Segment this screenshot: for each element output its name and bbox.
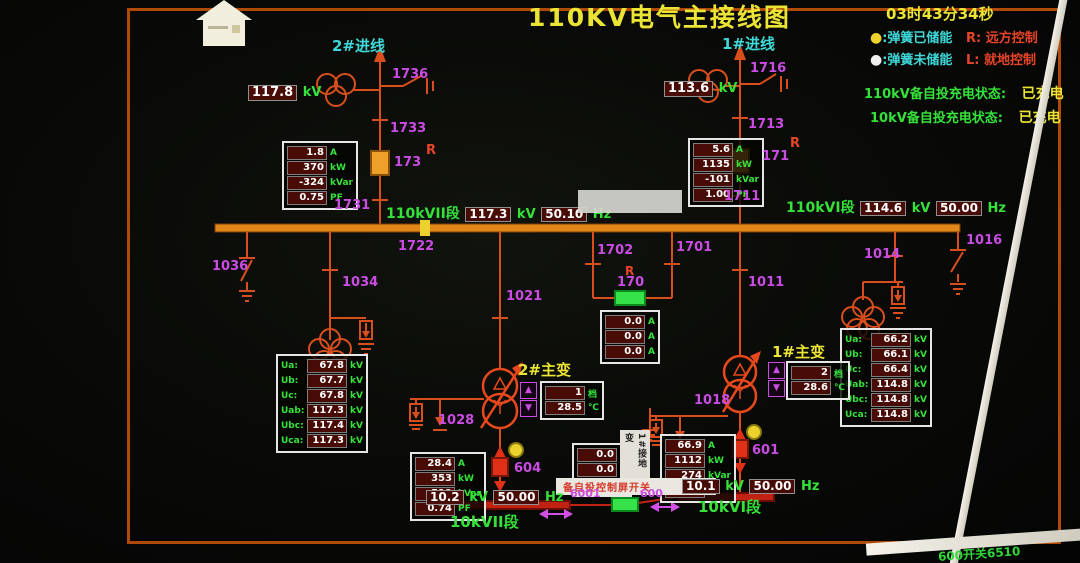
transformer-2-symbol-part[interactable]	[494, 378, 506, 389]
feeder-1-voltage: 113.6 kV	[664, 78, 737, 97]
meter-unit: kW	[736, 160, 752, 170]
arrester-icon-right[interactable]	[890, 282, 906, 318]
meter-value: 117.4	[307, 419, 347, 433]
ground-bay-label: 1#接地变	[620, 430, 650, 478]
meter-row: 5.6A	[693, 143, 759, 157]
meter-value: 5.6	[693, 143, 733, 157]
label-1028: 1028	[438, 414, 474, 428]
meter-row: -101kVar	[693, 173, 759, 187]
page-title: 110KV电气主接线图	[528, 4, 791, 32]
meter-row: Uc:66.4kV	[845, 363, 927, 377]
charge-status-110kv: 110kV备自投充电状态: 已充电	[864, 84, 1064, 102]
home-icon-part[interactable]	[232, 25, 240, 33]
spring-charged-indicator-601	[747, 425, 761, 439]
meter-unit: kV	[914, 365, 927, 375]
breaker-604-part[interactable]	[492, 458, 508, 476]
label-1034: 1034	[342, 276, 378, 290]
meter-row: Ub:67.7kV	[281, 374, 363, 388]
bus-sec1-hz: 50.00	[936, 201, 982, 216]
label-1716: 1716	[750, 62, 786, 76]
bus10-sec2-hz: 50.00	[493, 490, 539, 505]
clock: 03时43分34秒	[886, 6, 994, 23]
meter-unit: A	[708, 441, 715, 451]
meter-row: 2档	[791, 366, 845, 380]
meter-row: Uca:117.3kV	[281, 434, 363, 448]
meter-value: 28.6	[791, 381, 831, 395]
meter-value: 67.8	[307, 359, 347, 373]
label-171: 171	[762, 150, 789, 164]
meter-unit: A	[648, 332, 655, 342]
meter-row: 370kW	[287, 161, 353, 175]
label-1016: 1016	[966, 234, 1002, 248]
meter-value: 0.0	[605, 330, 645, 344]
arrester-icon[interactable]	[358, 321, 374, 354]
spring-charged-legend-icon: ●	[870, 30, 882, 46]
meter-unit: A	[736, 145, 743, 155]
tx1-tap-raise-button[interactable]: ▲	[768, 362, 785, 379]
meter-value: 66.4	[871, 363, 911, 377]
disconnect-1716[interactable]	[740, 74, 787, 92]
bus-sec1-hz-unit: Hz	[988, 201, 1006, 216]
meter-unit: kV	[350, 391, 363, 401]
meter-row: 0.0A	[605, 330, 655, 344]
meter-value: 117.3	[307, 434, 347, 448]
bus10-sec2-kv: 10.2	[426, 490, 464, 505]
meter-label: Uca:	[845, 410, 871, 420]
breaker-604[interactable]	[492, 446, 508, 492]
meter-value: 1112	[665, 454, 705, 468]
drawout-arrows-part	[539, 509, 548, 519]
meter-unit: kV	[350, 406, 363, 416]
meter-unit: kW	[458, 474, 474, 484]
meter-unit: kV	[350, 361, 363, 371]
meter-label: Ua:	[281, 361, 307, 371]
meter-value: 28.4	[415, 457, 455, 471]
bus-sec2-kv: 117.3	[465, 207, 511, 222]
blank-label-box	[578, 190, 682, 213]
earth-switch-1016[interactable]	[950, 232, 966, 294]
label-1733: 1733	[390, 122, 426, 136]
meter-row: 0.0A	[605, 345, 655, 359]
meter-unit: 档	[588, 387, 597, 400]
drawout-arrows-part	[564, 509, 573, 519]
label-601: 601	[752, 444, 779, 458]
meter-value: -324	[287, 176, 327, 190]
label-1021: 1021	[506, 290, 542, 304]
home-icon-part[interactable]	[208, 26, 228, 29]
legend-2-text: :弹簧未储能	[882, 53, 952, 68]
meter-row: 0.0A	[605, 315, 655, 329]
bus10-sec1-hz-unit: Hz	[801, 479, 819, 494]
meter-label: Uc:	[281, 391, 307, 401]
meter-unit: A	[458, 459, 465, 469]
bus-tie-meter: 0.0A0.0A0.0A	[600, 310, 660, 364]
meter-unit: kV	[914, 380, 927, 390]
bus10-sec1-kv: 10.1	[682, 479, 720, 494]
transformer-2-name: 2#主变	[518, 362, 571, 379]
arrester-icon-right-part[interactable]	[894, 295, 902, 302]
meter-value: 2	[791, 366, 831, 380]
meter-unit: kV	[914, 350, 927, 360]
bus-10kv-sec1-name: 10kVI段	[698, 499, 761, 516]
meter-value: 1135	[693, 158, 733, 172]
meter-row: 353kW	[415, 472, 481, 486]
meter-value: 370	[287, 161, 327, 175]
scada-screen-photo: 110KV电气主接线图 03时43分34秒 ●:弹簧已储能 R: 远方控制 ●:…	[0, 0, 1080, 563]
feeder-2-voltage-unit: kV	[303, 85, 322, 100]
label-1011: 1011	[748, 276, 784, 290]
meter-unit: kV	[350, 376, 363, 386]
meter-value: 114.8	[871, 378, 911, 392]
breaker-170[interactable]	[615, 291, 645, 305]
breaker-604-part[interactable]	[494, 446, 506, 458]
meter-row: Ub:66.1kV	[845, 348, 927, 362]
charge-status-10kv: 10kV备自投充电状态: 已充电	[870, 108, 1061, 126]
meter-unit: kV	[914, 335, 927, 345]
legend-2-code: L: 就地控制	[966, 53, 1036, 68]
meter-label: Ub:	[281, 376, 307, 386]
charge-status-10kv-label: 10kV备自投充电状态:	[870, 111, 1003, 126]
meter-row: 1112kW	[665, 454, 731, 468]
meter-row: Uc:67.8kV	[281, 389, 363, 403]
label-1014: 1014	[864, 248, 900, 262]
meter-unit: A	[648, 347, 655, 357]
meter-value: 117.3	[307, 404, 347, 418]
meter-unit: ℃	[588, 403, 599, 413]
meter-label: Ub:	[845, 350, 871, 360]
bus-sec1-kv: 114.6	[860, 201, 906, 216]
meter-unit: A	[330, 148, 337, 158]
meter-label: Uca:	[281, 436, 307, 446]
legend-1-code: R: 远方控制	[966, 31, 1038, 46]
bus-110kv	[215, 224, 960, 232]
tx2-tap-temp-panel: 1档28.5℃	[540, 381, 604, 420]
label-173: 173	[394, 156, 421, 170]
meter-unit: kVar	[330, 178, 353, 188]
meter-value: 1.8	[287, 146, 327, 160]
spring-charged-indicator-604	[509, 443, 523, 457]
bus-10kv-sec2-name: 10kVII段	[450, 514, 519, 531]
meter-value: 28.5	[545, 401, 585, 415]
meter-row: Ubc:114.8kV	[845, 393, 927, 407]
meter-row: Uca:114.8kV	[845, 408, 927, 422]
meter-unit: A	[648, 317, 655, 327]
meter-value: 0.0	[577, 463, 617, 477]
home-icon-part[interactable]	[196, 0, 252, 20]
bus-section-disconnect-1722[interactable]	[420, 220, 430, 236]
bus-sec2-name: 110kVII段	[386, 206, 460, 222]
meter-value: 1	[545, 386, 585, 400]
pt-bay-1034[interactable]	[309, 232, 374, 371]
tx1-tap-lower-button[interactable]: ▼	[768, 380, 785, 397]
label-1713: 1713	[748, 118, 784, 132]
feeder-2-name: 2#进线	[332, 38, 385, 55]
meter-unit: kW	[330, 163, 346, 173]
arrester-group-tx2-part	[412, 412, 420, 419]
meter-label: Ua:	[845, 335, 871, 345]
meter-value: 114.8	[871, 393, 911, 407]
label-170: 170	[617, 276, 644, 290]
home-icon[interactable]	[196, 0, 252, 46]
meter-unit: kW	[708, 456, 724, 466]
bus-sec1-kv-unit: kV	[912, 201, 931, 216]
meter-label: Ubc:	[281, 421, 307, 431]
drawout-arrows-part	[650, 502, 659, 512]
meter-value: 353	[415, 472, 455, 486]
charge-status-110kv-label: 110kV备自投充电状态:	[864, 87, 1006, 102]
bus-10kv-sec1-label: 10.1 kV 50.00 Hz	[682, 476, 819, 494]
legend-line-1: ●:弹簧已储能 R: 远方控制	[870, 28, 1038, 46]
label-600: 600	[640, 488, 663, 500]
bus10-sec2-kv-unit: kV	[469, 490, 488, 505]
meter-value: 0.0	[577, 448, 617, 462]
bus-110kv-sec1-label: 110kVI段 114.6 kV 50.00 Hz	[786, 198, 1006, 216]
meter-value: -101	[693, 173, 733, 187]
label-1036: 1036	[212, 260, 248, 274]
meter-label: Uab:	[281, 406, 307, 416]
meter-row: Ua:67.8kV	[281, 359, 363, 373]
meter-unit: 档	[834, 367, 843, 380]
feeder-2-pt-icon	[317, 74, 380, 106]
bus10-sec1-kv-unit: kV	[725, 479, 744, 494]
meter-row: 1.8A	[287, 146, 353, 160]
label-6001: 6001	[570, 488, 601, 500]
meter-value: 67.7	[307, 374, 347, 388]
meter-row: Ubc:117.4kV	[281, 419, 363, 433]
legend-1-text: :弹簧已储能	[882, 31, 952, 46]
feeder-2-voltage-value: 117.8	[248, 85, 297, 101]
meter-row: Ua:66.2kV	[845, 333, 927, 347]
meter-unit: kV	[350, 436, 363, 446]
feeder-2-voltage: 117.8 kV	[248, 82, 321, 101]
remote-flag-171: R	[790, 137, 800, 151]
breaker-600[interactable]	[612, 498, 638, 511]
meter-value: 66.9	[665, 439, 705, 453]
bus-sec1-name: 110kVI段	[786, 200, 855, 216]
breaker-173[interactable]	[371, 151, 389, 175]
spring-discharged-legend-icon: ●	[870, 52, 882, 68]
tx2-tap-raise-button[interactable]: ▲	[520, 382, 537, 399]
meter-value: 66.1	[871, 348, 911, 362]
earth-switch-1016-part[interactable]	[951, 252, 963, 272]
meter-value: 0.0	[605, 345, 645, 359]
feeder-1-voltage-value: 113.6	[664, 81, 713, 97]
label-604: 604	[514, 462, 541, 476]
label-1711: 1711	[724, 190, 760, 204]
meter-row: 28.4A	[415, 457, 481, 471]
meter-row: 28.5℃	[545, 401, 599, 415]
meter-value: 114.8	[871, 408, 911, 422]
meter-row: -324kVar	[287, 176, 353, 190]
meter-unit: kV	[914, 410, 927, 420]
meter-value: 0.0	[605, 315, 645, 329]
meter-row: 1档	[545, 386, 599, 400]
meter-row: Uab:117.3kV	[281, 404, 363, 418]
meter-row: 28.6℃	[791, 381, 845, 395]
meter-value: 66.2	[871, 333, 911, 347]
meter-unit: ℃	[834, 383, 845, 393]
transformer-1-name: 1#主变	[772, 344, 825, 361]
tx1-tap-temp-panel: 2档28.6℃	[786, 361, 850, 400]
feeder-1-name: 1#进线	[722, 36, 775, 53]
bus-sec2-kv-unit: kV	[517, 207, 536, 222]
bus10-sec1-hz: 50.00	[749, 479, 795, 494]
legend-line-2: ●:弹簧未储能 L: 就地控制	[870, 50, 1036, 68]
meter-value: 67.8	[307, 389, 347, 403]
tx2-tap-lower-button[interactable]: ▼	[520, 400, 537, 417]
arrester-icon-part[interactable]	[362, 331, 370, 338]
bus2-pt-voltage-panel: Ua:67.8kVUb:67.7kVUc:67.8kVUab:117.3kVUb…	[276, 354, 368, 453]
label-1722: 1722	[398, 240, 434, 254]
meter-value: 0.75	[287, 191, 327, 205]
label-1018: 1018	[694, 394, 730, 408]
label-1736: 1736	[392, 68, 428, 82]
label-1702: 1702	[597, 244, 633, 258]
remote-flag-173: R	[426, 144, 436, 158]
label-1731: 1731	[334, 199, 370, 213]
meter-row: Uab:114.8kV	[845, 378, 927, 392]
bus1-pt-voltage-panel: Ua:66.2kVUb:66.1kVUc:66.4kVUab:114.8kVUb…	[840, 328, 932, 427]
meter-unit: kVar	[736, 175, 759, 185]
meter-row: 66.9A	[665, 439, 731, 453]
bus-10kv-sec2-label: 10.2 kV 50.00 Hz	[426, 487, 563, 505]
feeder-1-voltage-unit: kV	[719, 81, 738, 96]
transformer-1-symbol-part[interactable]	[734, 364, 746, 375]
label-1701: 1701	[676, 241, 712, 255]
meter-row: 1135kW	[693, 158, 759, 172]
transformer-2-symbol[interactable]	[481, 362, 523, 428]
bus10-sec2-hz-unit: Hz	[545, 490, 563, 505]
drawout-arrows-part	[671, 502, 680, 512]
meter-unit: kV	[914, 395, 927, 405]
meter-unit: kV	[350, 421, 363, 431]
